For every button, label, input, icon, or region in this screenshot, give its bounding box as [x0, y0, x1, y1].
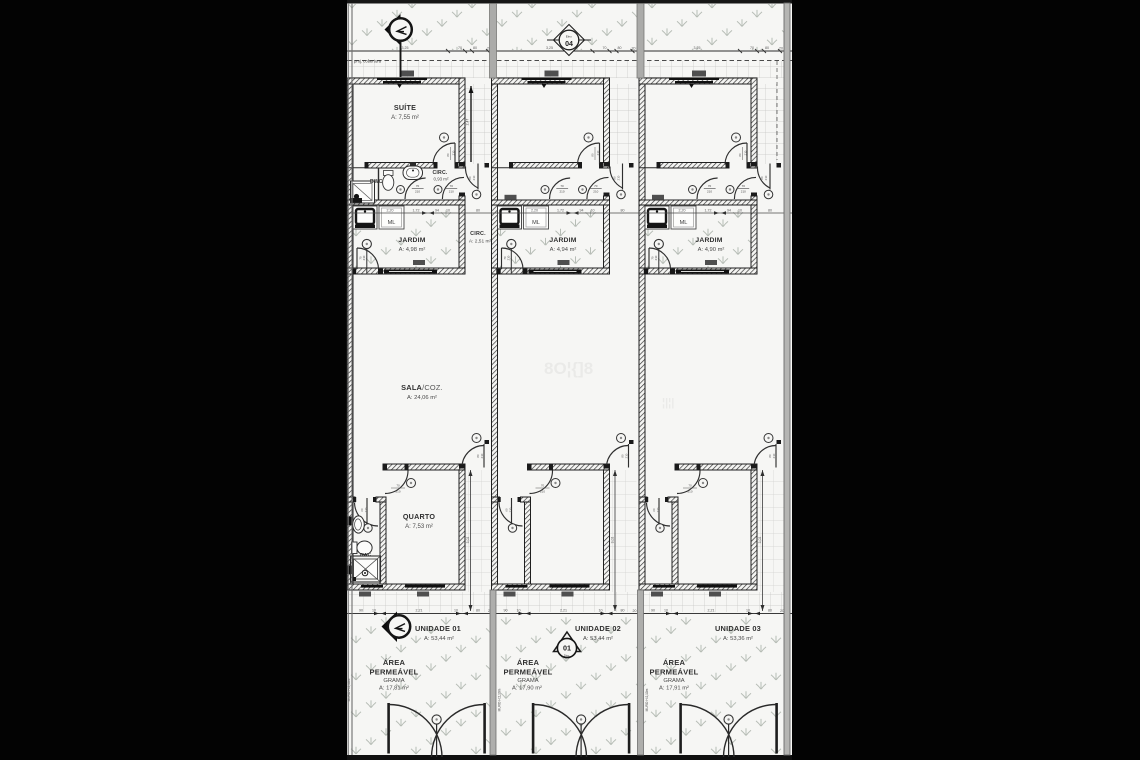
svg-text:A: 7,55 m²: A: 7,55 m²: [391, 115, 419, 121]
svg-text:Elev.: Elev.: [566, 35, 573, 39]
svg-text:MURO H:2,10m: MURO H:2,10m: [498, 688, 502, 711]
svg-text:GRAMA: GRAMA: [517, 678, 538, 684]
svg-text:ÁREA: ÁREA: [383, 658, 406, 667]
svg-text:A: 4,94 m²: A: 4,94 m²: [550, 247, 577, 253]
svg-text:JARDIM: JARDIM: [398, 237, 425, 244]
svg-text:BWC: BWC: [370, 179, 383, 185]
svg-text:SALA/COZ.: SALA/COZ.: [401, 383, 443, 392]
svg-text:Disc.: Disc.: [564, 654, 570, 658]
svg-text:A: 4,98 m²: A: 4,98 m²: [399, 247, 426, 253]
svg-text:PERMEÁVEL: PERMEÁVEL: [649, 668, 698, 677]
svg-text:CIRC.: CIRC.: [470, 231, 486, 237]
svg-text:UNIDADE 02: UNIDADE 02: [575, 624, 621, 633]
svg-text:MURO H:2,10m: MURO H:2,10m: [347, 678, 351, 701]
svg-text:A: 4,90 m²: A: 4,90 m²: [698, 247, 725, 253]
svg-text:¦|¦|: ¦|¦|: [662, 397, 674, 409]
svg-text:A: 17,91 m²: A: 17,91 m²: [659, 686, 689, 692]
svg-text:JARDIM: JARDIM: [695, 237, 722, 244]
svg-text:JARDIM: JARDIM: [549, 237, 576, 244]
svg-text:PERMEÁVEL: PERMEÁVEL: [503, 668, 552, 677]
svg-text:UNIDADE 03: UNIDADE 03: [715, 624, 761, 633]
svg-text:A: 24,06 m²: A: 24,06 m²: [407, 395, 437, 401]
svg-text:2,47: 2,47: [466, 119, 470, 126]
svg-text:SUÍTE: SUÍTE: [394, 103, 416, 112]
svg-text:GRAMA: GRAMA: [663, 678, 684, 684]
svg-text:ÁREA: ÁREA: [663, 658, 686, 667]
svg-text:MURO H:2,10m: MURO H:2,10m: [645, 688, 649, 711]
svg-text:PERMEÁVEL: PERMEÁVEL: [369, 668, 418, 677]
svg-text:0,93 m²: 0,93 m²: [434, 177, 449, 182]
svg-text:A: 2,51 m²: A: 2,51 m²: [469, 239, 492, 245]
svg-text:A: 53,44 m²: A: 53,44 m²: [424, 636, 454, 642]
svg-text:UNIDADE 01: UNIDADE 01: [415, 624, 461, 633]
svg-text:ÁREA: ÁREA: [517, 658, 540, 667]
svg-text:GRAMA: GRAMA: [383, 678, 404, 684]
svg-text:04: 04: [565, 41, 573, 48]
svg-text:A: 17,81 m²: A: 17,81 m²: [379, 686, 409, 692]
svg-text:A: 53,36 m²: A: 53,36 m²: [723, 636, 753, 642]
svg-text:proj. cobertura: proj. cobertura: [354, 59, 382, 64]
svg-text:A: 53,44 m²: A: 53,44 m²: [583, 636, 613, 642]
svg-text:A: 17,90 m²: A: 17,90 m²: [512, 686, 542, 692]
svg-text:CIRC.: CIRC.: [432, 170, 447, 176]
svg-text:QUARTO: QUARTO: [403, 512, 435, 521]
svg-text:8O¦{]8: 8O¦{]8: [544, 359, 593, 378]
svg-text:A: 7,53 m²: A: 7,53 m²: [405, 524, 433, 530]
svg-text:01: 01: [563, 644, 571, 653]
